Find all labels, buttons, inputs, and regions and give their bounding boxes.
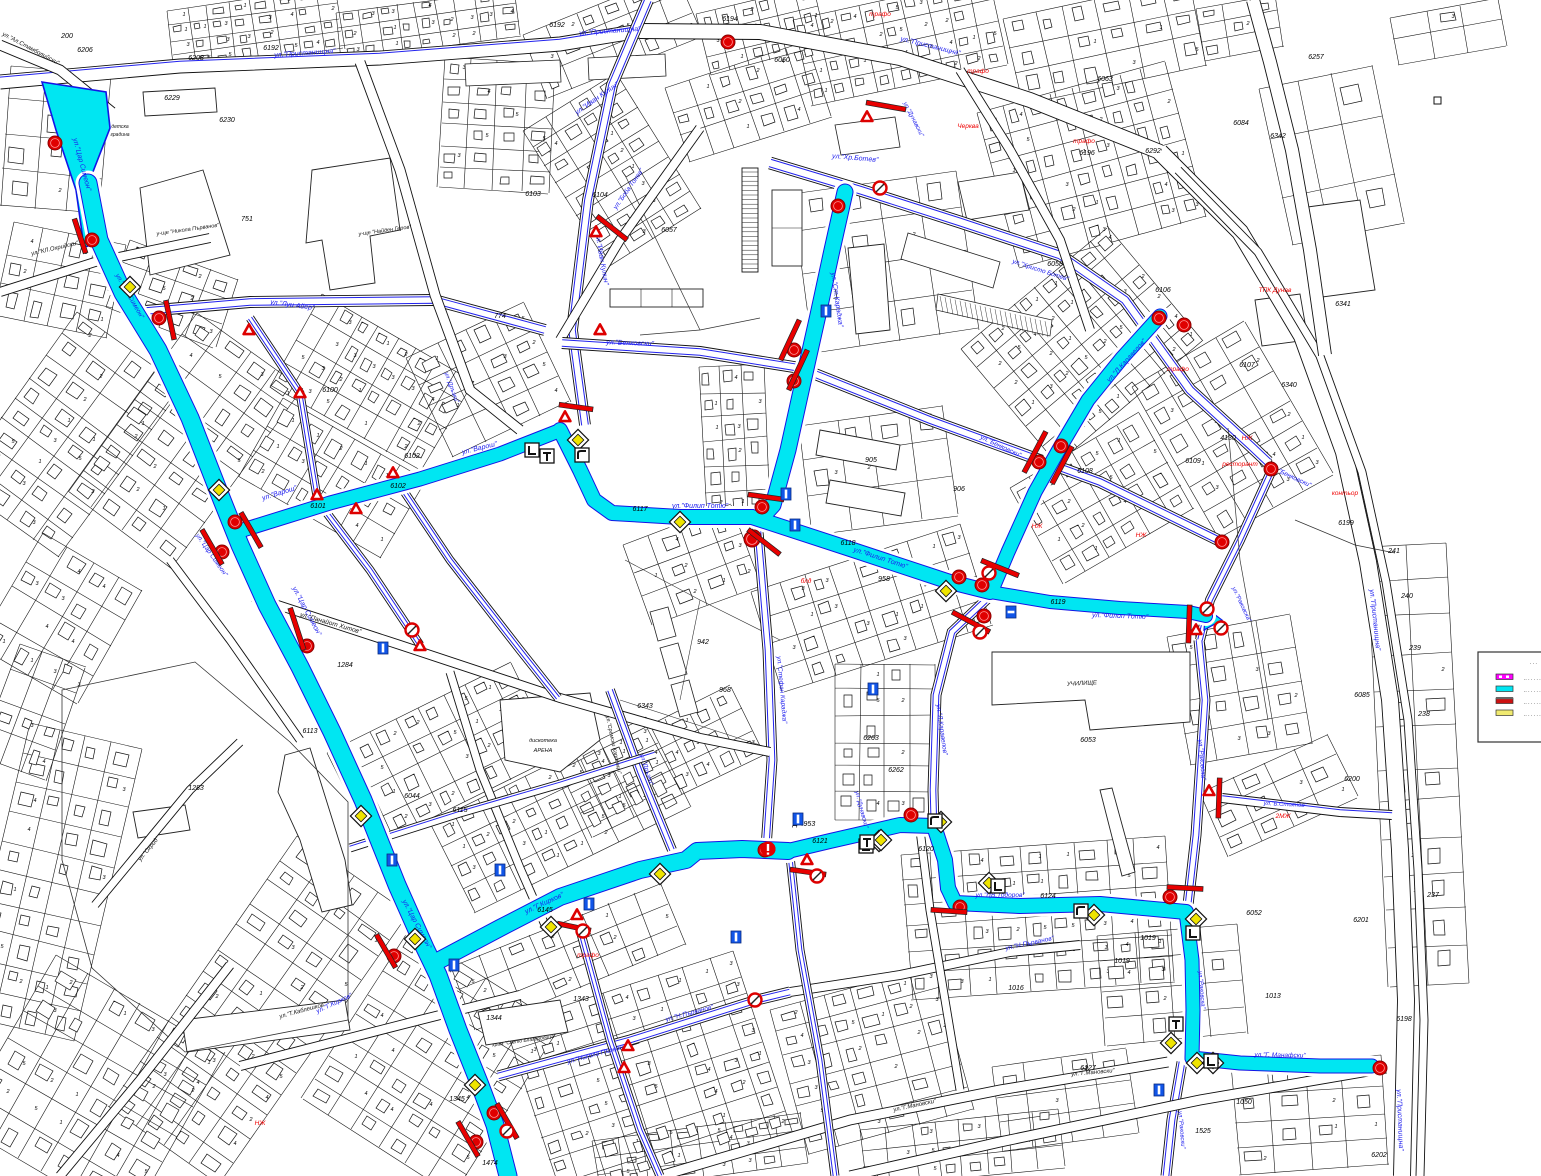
svg-text:241: 241: [1387, 548, 1400, 555]
svg-text:1: 1: [810, 612, 813, 618]
svg-text:4: 4: [675, 750, 678, 756]
svg-text:3: 3: [1055, 1098, 1059, 1104]
svg-text:2: 2: [415, 720, 419, 726]
svg-text:238: 238: [1417, 711, 1430, 718]
svg-text:.. . . . . . .: .. . . . . . .: [1524, 700, 1541, 706]
svg-text:3: 3: [1315, 460, 1319, 466]
svg-text:3: 3: [77, 682, 81, 688]
svg-text:5: 5: [1189, 645, 1193, 651]
svg-text:3: 3: [919, 0, 923, 6]
svg-text:6200: 6200: [1344, 776, 1360, 783]
svg-text:1: 1: [392, 789, 395, 795]
svg-text:4: 4: [1156, 845, 1159, 851]
svg-text:5: 5: [665, 914, 669, 920]
svg-text:5: 5: [326, 399, 330, 405]
svg-text:774: 774: [494, 313, 506, 320]
svg-text:5: 5: [279, 1074, 283, 1080]
svg-text:2: 2: [547, 775, 551, 781]
svg-text:4: 4: [797, 107, 800, 113]
svg-text:5: 5: [492, 1053, 496, 1059]
svg-text:1: 1: [203, 24, 206, 30]
svg-text:ул.”Дунавски”: ул.”Дунавски”: [901, 100, 925, 138]
svg-text:4: 4: [429, 1102, 432, 1108]
svg-text:4: 4: [707, 1067, 710, 1073]
svg-text:3: 3: [53, 1008, 57, 1014]
svg-text:5: 5: [294, 43, 298, 49]
svg-text:5: 5: [162, 286, 166, 292]
svg-text:ул.”Г. Манафски”: ул.”Г. Манафски”: [1253, 1052, 1306, 1060]
svg-text:1: 1: [2, 639, 5, 645]
svg-text:6107: 6107: [1239, 362, 1256, 369]
svg-text:2: 2: [878, 32, 882, 38]
svg-text:4: 4: [810, 23, 813, 29]
svg-text:1: 1: [903, 981, 906, 987]
svg-text:1343: 1343: [573, 996, 589, 1003]
svg-text:2: 2: [1140, 274, 1144, 280]
svg-text:2: 2: [780, 1119, 784, 1125]
svg-text:НЖ: НЖ: [1032, 523, 1044, 530]
svg-text:2: 2: [1255, 358, 1259, 364]
svg-text:4: 4: [233, 1141, 236, 1147]
svg-text:4: 4: [675, 537, 678, 543]
svg-text:2: 2: [90, 489, 94, 495]
svg-text:4: 4: [1127, 970, 1130, 976]
svg-text:4: 4: [729, 1135, 732, 1141]
svg-text:2: 2: [57, 188, 61, 194]
svg-text:5: 5: [604, 1101, 608, 1107]
svg-text:3: 3: [738, 543, 742, 549]
svg-text:1: 1: [1104, 945, 1107, 951]
svg-text:5: 5: [876, 698, 880, 704]
svg-text:3: 3: [906, 1150, 910, 1156]
svg-text:1345: 1345: [449, 1096, 465, 1103]
svg-text:3: 3: [736, 982, 740, 988]
svg-text:2: 2: [692, 589, 696, 595]
svg-text:3: 3: [685, 772, 689, 778]
svg-text:1: 1: [819, 68, 822, 74]
svg-text:3: 3: [335, 342, 339, 348]
svg-text:. . .: . . .: [1530, 660, 1537, 666]
svg-text:4: 4: [980, 858, 983, 864]
svg-text:3: 3: [641, 181, 645, 187]
svg-text:1: 1: [354, 1054, 357, 1060]
svg-text:3: 3: [825, 578, 829, 584]
svg-text:4: 4: [316, 40, 319, 46]
svg-text:1: 1: [1057, 537, 1060, 543]
svg-text:5: 5: [78, 456, 82, 462]
svg-text:3: 3: [1255, 667, 1259, 673]
svg-text:1525: 1525: [1195, 1128, 1211, 1135]
svg-text:3: 3: [729, 961, 733, 967]
svg-text:2: 2: [248, 1117, 252, 1123]
svg-text:958: 958: [878, 576, 890, 583]
svg-text:1: 1: [59, 1120, 62, 1126]
svg-text:1: 1: [1189, 332, 1192, 338]
svg-text:4: 4: [71, 639, 74, 645]
svg-text:3: 3: [792, 645, 796, 651]
svg-text:6341: 6341: [1335, 301, 1351, 308]
svg-text:3: 3: [929, 974, 933, 980]
svg-text:4: 4: [466, 1095, 469, 1101]
svg-text:2: 2: [953, 61, 957, 67]
svg-text:1: 1: [358, 388, 361, 394]
svg-text:2: 2: [190, 1088, 194, 1094]
svg-text:1019: 1019: [1114, 958, 1130, 965]
svg-text:1: 1: [645, 738, 648, 744]
svg-text:1: 1: [631, 164, 634, 170]
svg-text:5: 5: [622, 803, 626, 809]
svg-text:трафо: трафо: [869, 11, 891, 18]
svg-text:3: 3: [226, 37, 230, 43]
svg-text:3: 3: [801, 586, 805, 592]
svg-text:4: 4: [290, 12, 293, 18]
svg-text:2: 2: [98, 374, 102, 380]
svg-text:трафо: трафо: [577, 952, 599, 959]
svg-text:6292: 6292: [1145, 148, 1161, 155]
svg-text:6199: 6199: [1338, 520, 1354, 527]
svg-text:2: 2: [584, 1131, 588, 1137]
svg-text:4: 4: [1272, 452, 1275, 458]
svg-text:1: 1: [746, 124, 749, 130]
svg-text:1: 1: [1095, 200, 1098, 206]
svg-text:4: 4: [487, 89, 490, 95]
svg-text:5: 5: [1119, 325, 1123, 331]
svg-text:2: 2: [908, 1004, 912, 1010]
svg-text:4: 4: [428, 3, 431, 9]
svg-text:5: 5: [1017, 345, 1021, 351]
svg-text:3: 3: [1267, 731, 1271, 737]
svg-text:5: 5: [1026, 137, 1030, 143]
svg-text:5: 5: [717, 1128, 721, 1134]
svg-text:2: 2: [18, 979, 22, 985]
svg-text:1: 1: [1094, 546, 1097, 552]
svg-text:.. . . . . . .: .. . . . . . .: [1524, 688, 1541, 694]
svg-text:5: 5: [515, 112, 519, 118]
svg-text:2: 2: [338, 446, 342, 452]
svg-text:6206: 6206: [77, 47, 93, 54]
svg-text:2: 2: [746, 569, 750, 575]
svg-text:1: 1: [100, 317, 103, 323]
svg-text:6230: 6230: [219, 117, 235, 124]
svg-text:3: 3: [61, 596, 65, 602]
svg-text:контьор: контьор: [1332, 490, 1359, 497]
svg-text:2: 2: [416, 421, 420, 427]
svg-text:1: 1: [677, 1153, 680, 1159]
svg-text:2: 2: [1262, 1156, 1266, 1162]
svg-text:5: 5: [933, 1166, 937, 1172]
svg-text:5: 5: [22, 1061, 26, 1067]
svg-text:4: 4: [1125, 942, 1128, 948]
svg-text:2: 2: [87, 333, 91, 339]
svg-text:2: 2: [1331, 1098, 1335, 1104]
svg-text:3: 3: [597, 751, 601, 757]
svg-text:3: 3: [503, 354, 507, 360]
svg-text:1: 1: [932, 544, 935, 550]
svg-text:3: 3: [102, 875, 106, 881]
svg-text:1: 1: [1201, 461, 1204, 467]
svg-text:6109: 6109: [1185, 458, 1201, 465]
svg-text:2: 2: [1440, 667, 1444, 673]
svg-text:2: 2: [352, 31, 356, 37]
svg-text:3: 3: [1106, 143, 1110, 149]
svg-text:5: 5: [1043, 925, 1047, 931]
svg-text:4: 4: [1108, 235, 1111, 241]
svg-text:1: 1: [920, 604, 923, 610]
svg-text:3: 3: [807, 1060, 811, 1066]
svg-text:2: 2: [338, 377, 342, 383]
svg-text:2: 2: [1286, 412, 1290, 418]
svg-text:2: 2: [1071, 207, 1075, 213]
svg-text:2: 2: [260, 469, 264, 475]
svg-text:6257: 6257: [1308, 54, 1325, 61]
svg-text:6262: 6262: [888, 767, 904, 774]
svg-text:6103: 6103: [525, 191, 541, 198]
svg-text:1: 1: [92, 437, 95, 443]
svg-text:1: 1: [1374, 1122, 1377, 1128]
svg-text:трафо: трафо: [1167, 366, 1189, 373]
svg-text:ул.”Панайот Хитов”: ул.”Панайот Хитов”: [298, 610, 363, 636]
svg-text:2: 2: [403, 352, 407, 358]
svg-text:3: 3: [814, 1085, 818, 1091]
svg-text:5: 5: [1195, 47, 1199, 53]
svg-text:1: 1: [451, 822, 454, 828]
svg-text:3: 3: [470, 15, 474, 21]
svg-text:1: 1: [259, 991, 262, 997]
svg-text:1: 1: [45, 985, 48, 991]
svg-text:3: 3: [209, 329, 213, 335]
svg-text:4: 4: [390, 1107, 393, 1113]
svg-text:1: 1: [1159, 25, 1162, 31]
svg-text:2: 2: [403, 814, 407, 820]
svg-text:3: 3: [428, 802, 432, 808]
svg-text:6145: 6145: [537, 907, 553, 914]
svg-text:2: 2: [1162, 996, 1166, 1002]
svg-text:4: 4: [876, 801, 879, 807]
svg-text:5: 5: [1095, 451, 1099, 457]
svg-text:4: 4: [265, 1095, 268, 1101]
svg-text:2: 2: [531, 340, 535, 346]
svg-text:5: 5: [1153, 449, 1157, 455]
svg-text:3: 3: [611, 1123, 615, 1129]
svg-text:2: 2: [976, 56, 980, 62]
svg-text:5: 5: [0, 944, 4, 950]
svg-text:2: 2: [82, 397, 86, 403]
svg-text:2: 2: [749, 7, 753, 13]
svg-text:4: 4: [510, 9, 513, 15]
svg-text:2: 2: [330, 6, 334, 12]
svg-text:4: 4: [714, 1089, 717, 1095]
svg-text:ТПК Дунав: ТПК Дунав: [1259, 287, 1292, 294]
svg-text:200: 200: [60, 33, 73, 40]
svg-text:2: 2: [612, 935, 616, 941]
svg-text:2: 2: [900, 698, 904, 704]
svg-text:2: 2: [1015, 927, 1019, 933]
svg-text:6229: 6229: [164, 95, 180, 102]
svg-text:3: 3: [1237, 736, 1241, 742]
svg-text:1: 1: [1158, 939, 1161, 945]
svg-text:2: 2: [1066, 499, 1070, 505]
svg-text:6102: 6102: [390, 483, 406, 490]
svg-text:4: 4: [734, 375, 737, 381]
svg-text:2: 2: [570, 22, 574, 28]
svg-text:3: 3: [53, 438, 57, 444]
svg-text:1: 1: [1054, 281, 1057, 287]
svg-text:3: 3: [903, 636, 907, 642]
svg-text:6342: 6342: [1270, 133, 1286, 140]
svg-text:1: 1: [243, 3, 246, 9]
svg-text:2: 2: [1013, 380, 1017, 386]
svg-text:2: 2: [683, 563, 687, 569]
svg-text:1: 1: [456, 403, 459, 409]
svg-text:3: 3: [737, 424, 741, 430]
svg-text:6340: 6340: [1281, 382, 1297, 389]
svg-text:3: 3: [901, 801, 905, 807]
svg-text:3: 3: [268, 15, 272, 21]
svg-text:6192: 6192: [549, 22, 565, 29]
svg-text:3: 3: [642, 229, 646, 235]
svg-text:3: 3: [643, 729, 647, 735]
svg-text:2: 2: [269, 30, 273, 36]
svg-text:3: 3: [151, 1027, 155, 1033]
svg-text:3: 3: [224, 21, 228, 27]
svg-text:3: 3: [957, 535, 961, 541]
svg-text:2: 2: [793, 1010, 797, 1016]
svg-text:1: 1: [316, 433, 319, 439]
svg-text:3: 3: [247, 34, 251, 40]
svg-text:4: 4: [1130, 919, 1133, 925]
svg-text:НЖ: НЖ: [255, 1120, 267, 1127]
svg-text:3: 3: [372, 364, 376, 370]
svg-text:942: 942: [697, 639, 709, 646]
svg-text:детска: детска: [111, 124, 128, 130]
svg-text:1: 1: [1334, 1124, 1337, 1130]
svg-text:1: 1: [1068, 336, 1071, 342]
svg-text:3: 3: [647, 1061, 651, 1067]
svg-text:2: 2: [5, 1089, 9, 1095]
svg-text:1: 1: [1031, 400, 1034, 406]
svg-text:3: 3: [391, 9, 395, 15]
svg-text:1: 1: [722, 578, 725, 584]
svg-text:751: 751: [241, 216, 253, 223]
svg-text:1: 1: [895, 612, 898, 618]
svg-text:6208: 6208: [188, 55, 204, 62]
svg-text:2: 2: [567, 977, 571, 983]
svg-text:4130: 4130: [1220, 435, 1236, 442]
svg-text:5: 5: [471, 979, 475, 985]
svg-text:4: 4: [706, 762, 709, 768]
svg-text:1: 1: [123, 1011, 126, 1017]
svg-text:1: 1: [530, 1049, 533, 1055]
svg-text:1: 1: [13, 887, 16, 893]
svg-text:3: 3: [411, 386, 415, 392]
svg-text:1: 1: [1040, 879, 1043, 885]
svg-text:6119: 6119: [1050, 599, 1065, 606]
svg-text:6101: 6101: [310, 503, 326, 510]
svg-text:2: 2: [1048, 351, 1052, 357]
svg-text:1: 1: [580, 841, 583, 847]
svg-text:1: 1: [488, 685, 491, 691]
svg-text:1: 1: [556, 853, 559, 859]
svg-text:3: 3: [1049, 384, 1053, 390]
svg-text:3: 3: [212, 1058, 216, 1064]
svg-text:2: 2: [1171, 347, 1175, 353]
svg-text:4: 4: [800, 1033, 803, 1039]
svg-text:237: 237: [1426, 892, 1440, 899]
svg-text:6053: 6053: [1080, 737, 1096, 744]
svg-text:1: 1: [162, 506, 165, 512]
svg-text:1: 1: [67, 418, 70, 424]
svg-text:1: 1: [364, 421, 367, 427]
svg-text:1: 1: [722, 1113, 725, 1119]
svg-text:5: 5: [1071, 923, 1075, 929]
svg-text:1: 1: [207, 1060, 210, 1066]
svg-text:5: 5: [485, 133, 489, 139]
svg-text:1: 1: [715, 425, 718, 431]
svg-text:2: 2: [997, 361, 1001, 367]
svg-text:1: 1: [622, 749, 625, 755]
svg-text:1284: 1284: [337, 662, 353, 669]
svg-text:6063: 6063: [1097, 76, 1113, 83]
svg-text:5: 5: [34, 1106, 38, 1112]
svg-text:4: 4: [554, 141, 557, 147]
svg-text:.. . . . . . .: .. . . . . . .: [1524, 712, 1541, 718]
svg-text:3: 3: [301, 459, 305, 465]
svg-text:3: 3: [431, 20, 435, 26]
svg-text:4: 4: [116, 1153, 119, 1159]
svg-text:6127: 6127: [1080, 1065, 1097, 1072]
svg-text:6201: 6201: [1353, 917, 1369, 924]
svg-text:1: 1: [610, 131, 613, 137]
svg-text:ул.”Филип Тотю”: ул.”Филип Тотю”: [1091, 612, 1149, 621]
svg-text:1: 1: [1341, 787, 1344, 793]
svg-text:4: 4: [1164, 182, 1167, 188]
svg-text:1: 1: [276, 444, 279, 450]
svg-text:5: 5: [218, 374, 222, 380]
svg-text:ул.”Дръзки”: ул.”Дръзки”: [442, 371, 459, 405]
svg-text:1: 1: [1117, 438, 1120, 444]
svg-text:6343: 6343: [637, 703, 653, 710]
svg-text:1: 1: [740, 54, 743, 60]
svg-text:блд: блд: [801, 577, 812, 585]
svg-text:3: 3: [32, 520, 36, 526]
svg-text:1: 1: [1181, 151, 1184, 157]
svg-text:2: 2: [485, 832, 489, 838]
svg-text:2: 2: [1102, 339, 1106, 345]
svg-text:2: 2: [741, 1080, 745, 1086]
svg-text:5: 5: [466, 1155, 470, 1161]
svg-text:2: 2: [1000, 326, 1004, 332]
svg-text:градина: градина: [110, 132, 129, 138]
svg-text:1: 1: [544, 830, 547, 836]
svg-text:6198: 6198: [1396, 1016, 1412, 1023]
svg-text:3: 3: [834, 470, 838, 476]
svg-text:ул.”Хр.Ботев”: ул.”Хр.Ботев”: [831, 153, 879, 164]
svg-text:3: 3: [35, 581, 39, 587]
svg-text:2: 2: [1156, 294, 1160, 300]
svg-text:дискотека: дискотека: [529, 738, 557, 744]
svg-text:5: 5: [237, 458, 241, 464]
svg-text:1: 1: [824, 88, 827, 94]
svg-text:5: 5: [287, 0, 291, 3]
svg-text:239: 239: [1408, 645, 1421, 652]
svg-text:3: 3: [866, 621, 870, 627]
svg-text:1: 1: [141, 421, 144, 427]
svg-text:2: 2: [1245, 21, 1249, 27]
svg-text:3: 3: [291, 945, 295, 951]
svg-text:3: 3: [960, 979, 964, 985]
svg-text:.. . . . . . .: .. . . . . . .: [1524, 676, 1541, 682]
svg-text:1: 1: [758, 1051, 761, 1057]
